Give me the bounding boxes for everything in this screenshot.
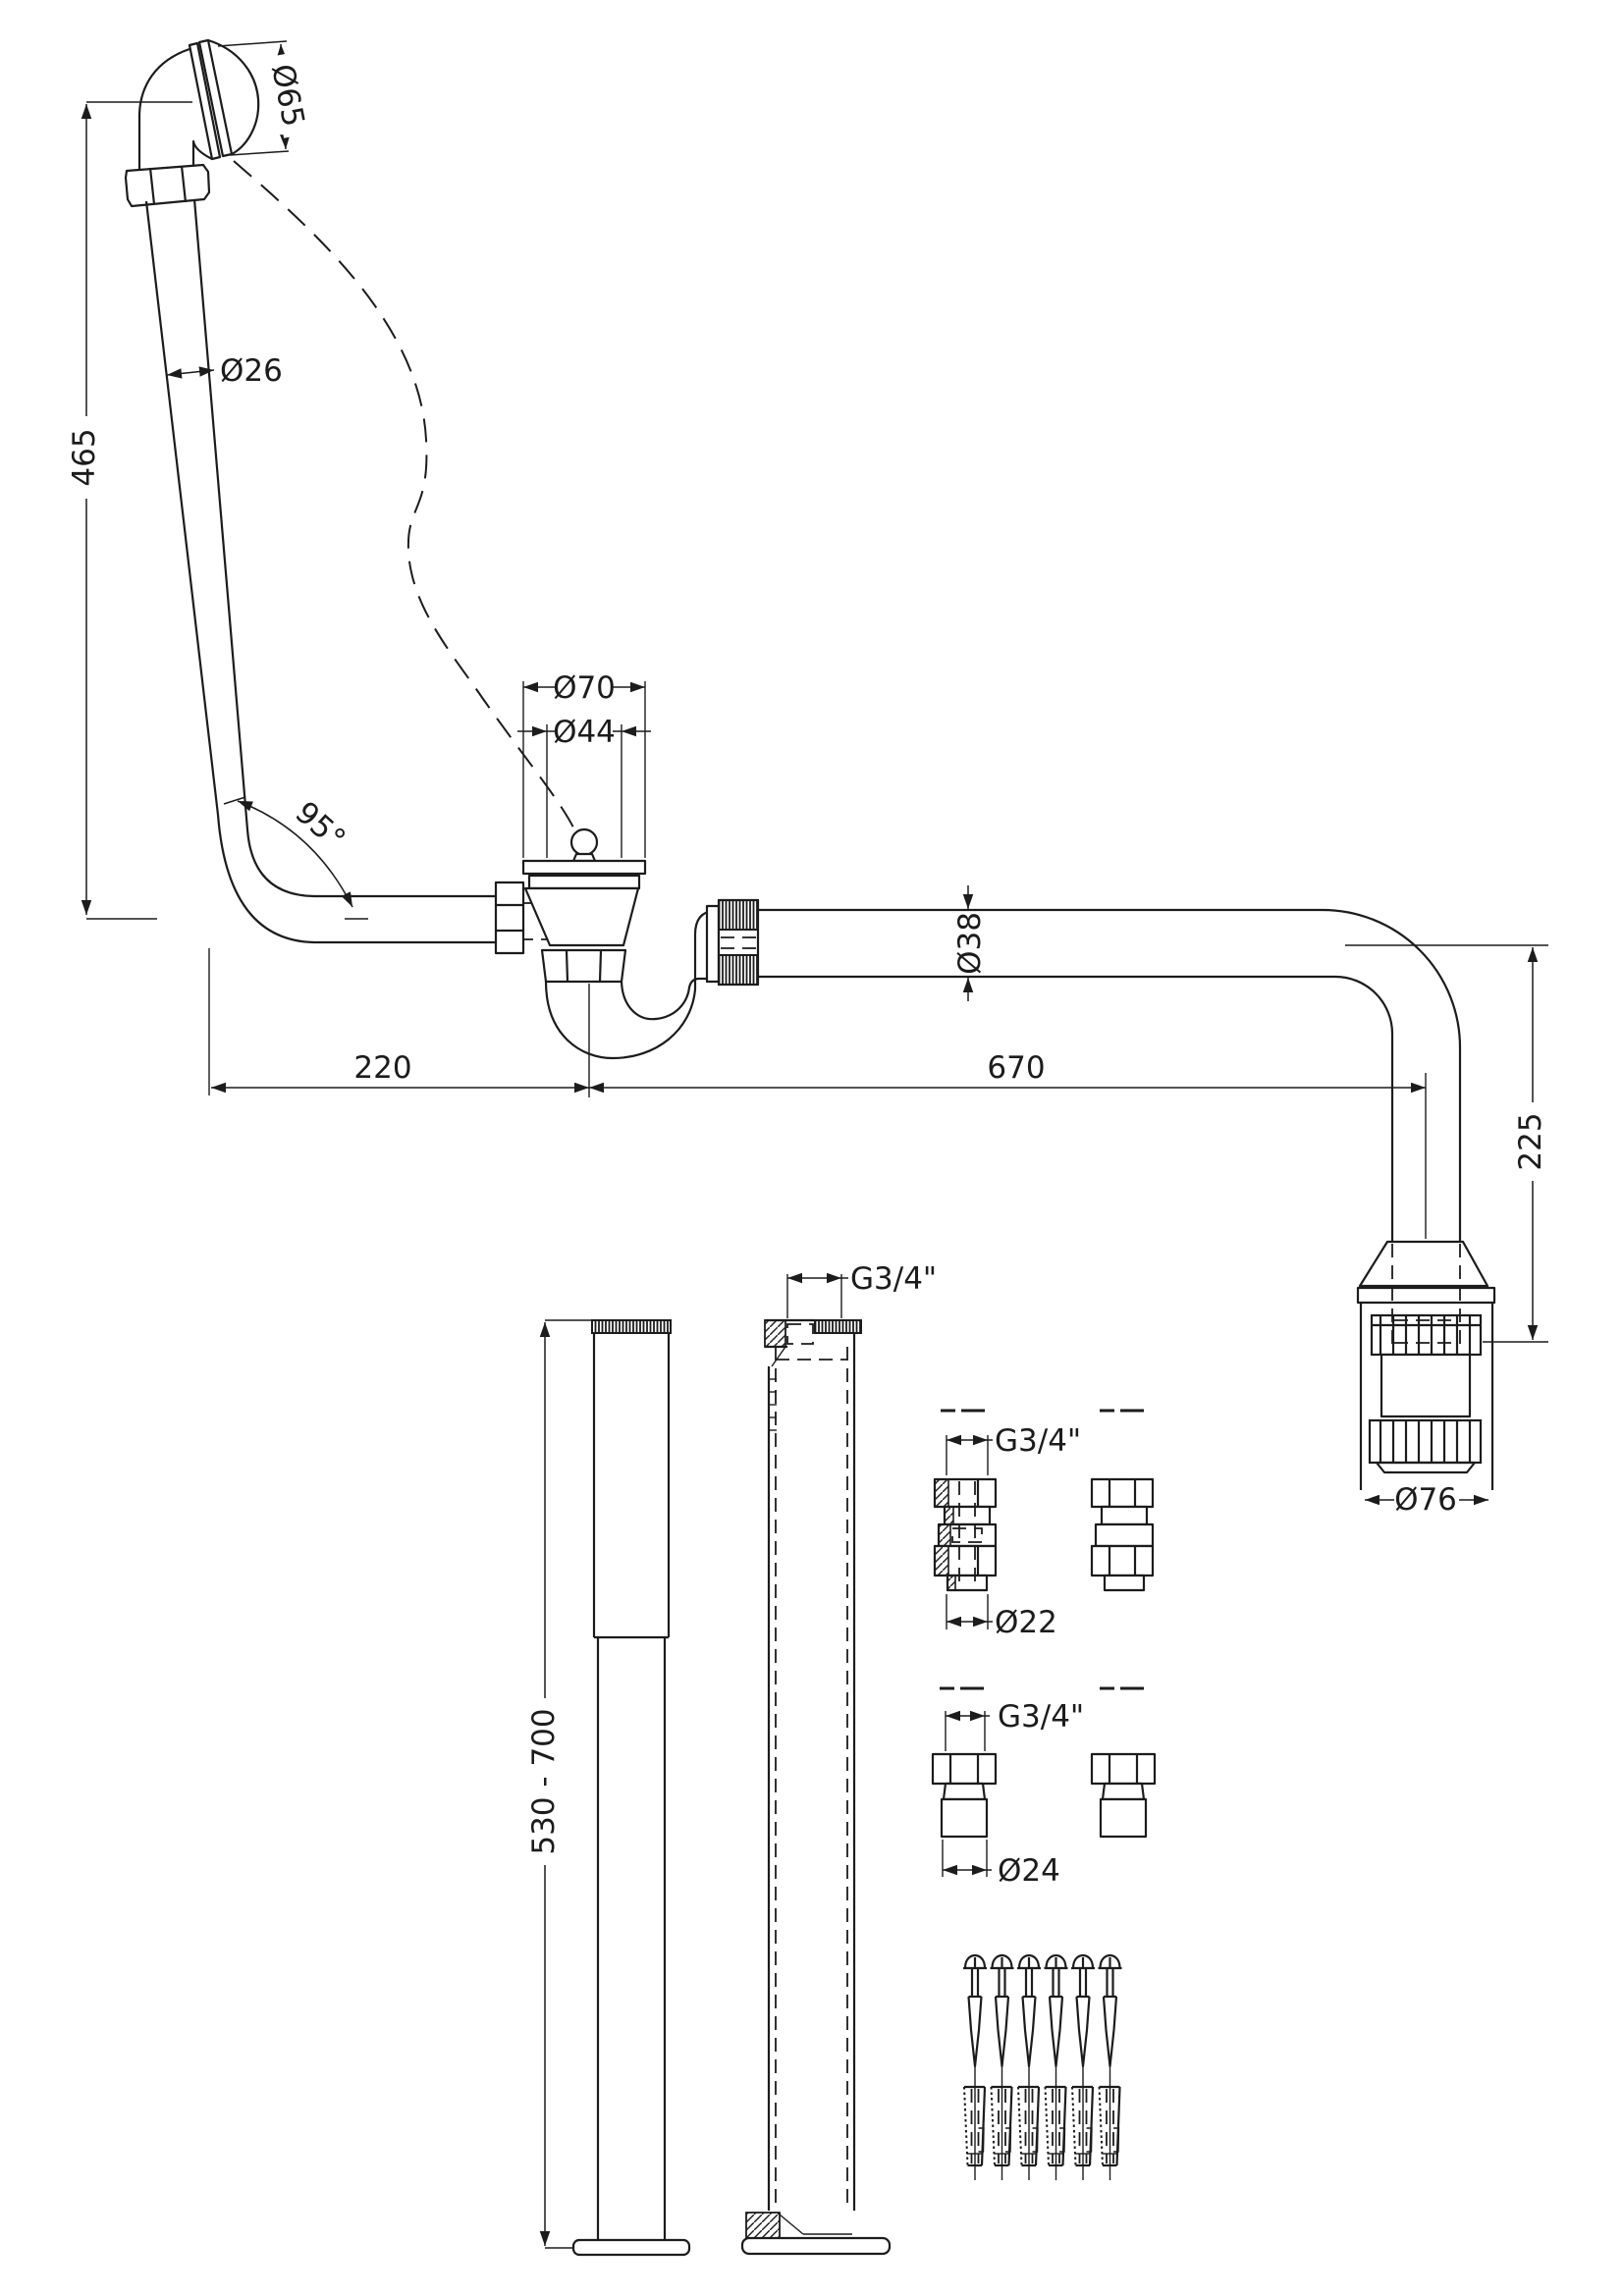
standpipe-height-dim: 530 - 700 <box>522 1320 592 2248</box>
connector-diameter-label: Ø76 <box>1394 1482 1457 1518</box>
overflow-height-label: 465 <box>67 428 102 486</box>
screw-icon <box>991 1955 1014 2066</box>
union-plain <box>1092 1479 1153 1590</box>
adaptor-thread-label: G3/4" <box>998 1699 1084 1735</box>
wall-plug-icon <box>1100 2067 1120 2180</box>
union-sectioned <box>935 1479 996 1590</box>
wall-plug-icon <box>992 2067 1012 2180</box>
run-dimensions: 220 670 <box>209 948 1426 1239</box>
wall-plug-icon <box>1072 2067 1093 2180</box>
waste-plug-diameter-label: Ø44 <box>553 715 616 750</box>
outlet-pipe-diameter-label: Ø38 <box>952 912 988 975</box>
wall-plug-icon <box>964 2067 985 2180</box>
standpipe-solid-view <box>573 1320 689 2255</box>
waste-plug-assembly <box>523 829 645 982</box>
drop-height-label: 225 <box>1513 1112 1548 1170</box>
union-pipe-diameter-label: Ø22 <box>995 1605 1057 1640</box>
standpipe-height-range-label: 530 - 700 <box>526 1708 562 1854</box>
trap-offset-label: 220 <box>353 1050 411 1086</box>
screw-icon <box>1071 1955 1095 2066</box>
screw-icon <box>1099 1955 1122 2066</box>
screw-icon <box>1045 1955 1068 2066</box>
bath-waste-technical-drawing: Ø65 Ø26 465 95° <box>0 0 1623 2296</box>
overflow-pipe-diameter-label: Ø26 <box>220 353 283 389</box>
screw-icon <box>963 1955 987 2066</box>
standpipe-thread-label: G3/4" <box>850 1261 937 1297</box>
plug-chain-path <box>234 161 573 828</box>
overflow-outlet <box>126 40 258 206</box>
overflow-height-dim: 465 <box>63 102 192 919</box>
wall-plug-icon <box>1046 2067 1066 2180</box>
adaptor-left <box>933 1754 996 1837</box>
outlet-pipe-diameter-dim: Ø38 <box>952 885 988 1001</box>
overflow-face-diameter-dim: Ø65 <box>218 41 313 155</box>
pipe-run-length-label: 670 <box>987 1050 1045 1086</box>
standpipe-thread-dim: G3/4" <box>787 1261 937 1318</box>
hex-adaptors: G3/4" Ø24 <box>933 1688 1155 1889</box>
adaptor-right <box>1092 1754 1155 1837</box>
fixing-screws <box>963 1955 1122 2066</box>
wall-plug-icon <box>1018 2067 1039 2180</box>
standpipe-section-view <box>742 1320 890 2254</box>
overflow-face-diameter-label: Ø65 <box>264 61 311 130</box>
overflow-pipe-diameter-dim: Ø26 <box>167 353 283 389</box>
waste-flange-diameter-label: Ø70 <box>553 670 616 706</box>
connector-diameter-dim: Ø76 <box>1365 1482 1488 1518</box>
trap-outlet-fitting <box>707 900 758 985</box>
wall-connector <box>1358 1242 1494 1490</box>
union-thread-label: G3/4" <box>995 1423 1081 1459</box>
screw-icon <box>1017 1955 1041 2066</box>
adaptor-diameter-label: Ø24 <box>998 1853 1060 1889</box>
compression-unions: G3/4" <box>935 1411 1153 1640</box>
wall-plugs <box>964 2067 1120 2180</box>
outlet-pipe <box>758 910 1460 1242</box>
technical-drawing-sheet: Ø65 Ø26 465 95° <box>0 0 1623 2296</box>
